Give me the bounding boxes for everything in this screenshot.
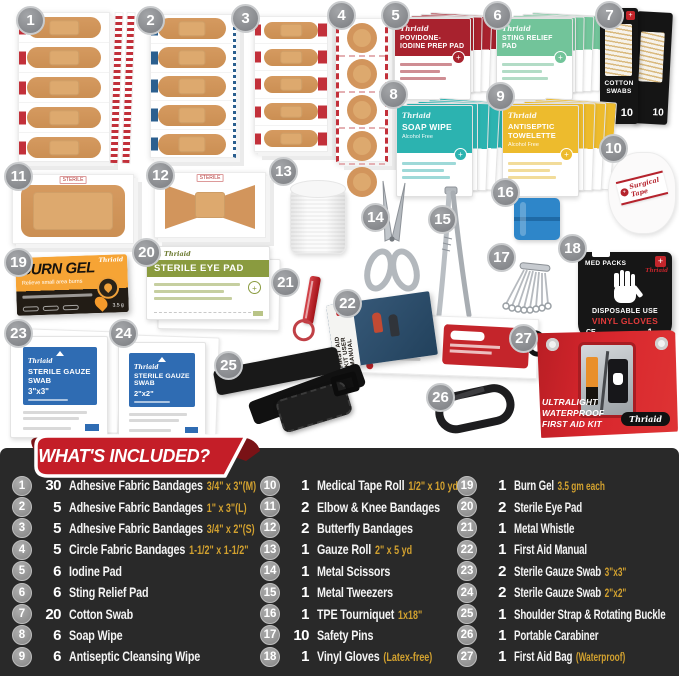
bandage-row [255,99,327,126]
circle-bandage-shape [347,131,377,161]
seal-icon: + [248,281,261,294]
item-qty: 6 [34,648,61,665]
item-qty: 1 [479,627,506,644]
callout-23: 23 [4,319,33,348]
item-note: 1/2" x 10 yd [408,481,458,493]
decor [151,80,158,93]
decor [23,417,79,420]
brand-text: Thriaid [98,256,123,264]
decor [614,273,619,288]
seal-icon: + [454,148,467,161]
item-number: 15 [260,583,280,603]
brand-text: Thriaid [508,111,573,120]
eye-pad-title: STERILE EYE PAD [147,260,269,277]
bandage-row [255,17,327,44]
callout-4: 4 [327,1,356,30]
item-number: 23 [457,561,477,581]
decor [151,51,158,64]
cross-icon: + [655,256,666,267]
decor [154,297,232,300]
decor [388,314,400,337]
item-label: Cotton Swab [69,607,133,622]
item-number: 17 [260,625,280,645]
tourniquet [514,198,560,240]
decor [318,105,327,118]
bandage-shape [264,130,318,147]
decor [255,133,261,144]
decor [508,176,556,179]
list-item: 251Shoulder Strap & Rotating Buckle [457,603,679,624]
decor [23,411,87,414]
item-number: 21 [457,518,477,538]
bandage-row [151,44,233,73]
glove-graphic [604,272,646,304]
callout-19: 19 [4,248,33,277]
item-note: 1" x 3"(L) [207,503,247,515]
item-label: Sterile Gauze Swab2"x2" [514,585,626,600]
swab-count: 10 [621,107,633,119]
bandage-shape [158,76,226,97]
bandage-row [339,93,385,129]
item-label: Adhesive Fabric Bandages1" x 3"(L) [69,500,247,515]
decor [502,63,554,66]
decor [154,312,261,313]
decor [253,311,263,316]
decor [151,109,158,122]
bag-body: ULTRALIGHTWATERPROOFFIRST AID KIT Thriai… [534,330,678,438]
bandage-row [19,43,109,73]
callout-20: 20 [132,238,161,267]
callout-14: 14 [361,203,390,232]
brand-text: Thriaid [400,24,465,33]
item-qty: 1 [282,541,309,558]
item-note: 1x18" [398,610,422,622]
hang-tab [592,249,610,257]
item-qty: 6 [34,563,61,580]
decor [134,401,170,403]
bandage-row [19,73,109,103]
sterile-eye-pads: + Thriaid STERILE EYE PAD + [146,246,282,332]
weight-text: 3.5 g [113,302,124,308]
callout-26: 26 [426,383,455,412]
swab-window [605,24,632,76]
item-note: 3"x3" [605,567,627,579]
decor [508,162,562,165]
callout-8: 8 [379,80,408,109]
scissors-icon [352,178,432,304]
gauze-size: 3"x3" [28,387,92,396]
sterile-tag: STERILE [60,176,87,184]
item-number: 16 [260,604,280,624]
bag-logo: Thriaid [621,412,670,426]
bandage-row [19,103,109,133]
decor [402,162,456,165]
packet-title: POVIDONE-IODINE PREP PAD [400,35,465,52]
item-number: 13 [260,540,280,560]
sterile-tag: STERILE [197,174,224,182]
brand-row: + Thriaid [147,247,269,260]
brand-text: Thriaid [645,268,668,274]
item-number: 5 [12,561,32,581]
decor [151,138,158,151]
packet-top: Thriaid ANTISEPTIC TOWELETTE Alcohol Fre… [503,106,578,153]
item-label: Burn Gel3.5 gm each [514,478,605,493]
brand-text: Thriaid [164,250,191,258]
decor [255,106,261,117]
bandage-shape [27,107,101,128]
decor [28,399,68,401]
item-label: Sterile Gauze Swab3"x3" [514,564,626,579]
decor [608,359,628,403]
decor [620,270,625,288]
item-qty: 6 [34,627,61,644]
item-number: 4 [12,540,32,560]
callout-10: 10 [599,134,628,163]
decor [63,305,79,311]
callout-13: 13 [269,157,298,186]
blue-label: Thriaid STERILE GAUZE SWAB 3"x3" [23,347,97,405]
decor [318,24,327,37]
item-number: 24 [457,583,477,603]
item-qty: 1 [282,648,309,665]
item-label: Antiseptic Cleansing Wipe [69,649,200,664]
item-number: 12 [260,518,280,538]
bandage-shape [158,105,226,126]
list-item: 202Sterile Eye Pad [457,496,679,517]
seal-icon: + [554,51,567,64]
decor [450,349,492,354]
decor [625,271,630,288]
item-label: First Aid Bag(Waterproof) [514,649,625,664]
bandage-shape [264,22,318,39]
bandage-row [19,133,109,163]
callout-15: 15 [428,205,457,234]
packet-title: ANTISEPTIC TOWELETTE [508,122,573,140]
decor [450,330,484,341]
item-label: Circle Fabric Bandages1-1/2" x 1-1/2" [69,542,248,557]
item-number: 9 [12,647,32,667]
decor [19,111,26,124]
bandage-shape [27,47,101,68]
bandage-row [339,129,385,165]
tape-title: Surgical Tape [628,175,665,199]
item-number: 27 [457,647,477,667]
list-item: 211Metal Whistle [457,518,679,539]
gloves-line1: DISPOSABLE USE [578,308,672,315]
item-label: Gauze Roll2" x 5 yd [317,542,412,557]
bandage-row [255,44,327,71]
callout-27: 27 [509,324,538,353]
item-number: 6 [12,583,32,603]
cross-icon: + [626,11,635,20]
maker-text: MED PACKS [585,260,626,267]
bandage-shape [21,185,125,237]
product-infographic: Thriaid POVIDONE-IODINE PREP PAD + Thria… [0,0,679,676]
packet-front: Thriaid STERILE GAUZE SWAB 2"x2" [118,342,206,440]
bandages-large-card [150,14,236,158]
gloves-line2: VINYL GLOVES [578,316,672,326]
decor [372,312,384,333]
surgical-tape: + Surgical Tape [608,152,676,234]
packet-title: SOAP WIPE [402,122,467,132]
decor [400,70,440,73]
item-label: Shoulder Strap & Rotating Buckle [514,607,665,622]
antiseptic-towelettes: Thriaid ANTISEPTIC TOWELETTE Alcohol Fre… [502,100,612,200]
decor [255,52,261,63]
item-qty: 1 [479,648,506,665]
decor [502,70,542,73]
decor [43,305,59,311]
item-note: 2" x 5 yd [375,545,412,557]
bandage-row [151,73,233,102]
item-label: Medical Tape Roll1/2" x 10 yd [317,478,458,493]
callout-24: 24 [109,319,138,348]
item-qty: 1 [282,477,309,494]
decor [318,51,327,64]
packet-front: Thriaid STERILE GAUZE SWAB 3"x3" [10,336,108,438]
item-number: 14 [260,561,280,581]
item-qty: 1 [479,520,506,537]
first-aid-bag: ULTRALIGHTWATERPROOFFIRST AID KIT Thriai… [528,326,678,440]
roll-top [290,180,346,198]
circle-bandage-shape [347,23,377,53]
item-qty: 5 [34,541,61,558]
swab-window [638,31,665,82]
item-qty: 5 [34,499,61,516]
item-qty: 10 [282,627,309,644]
packet-top: Thriaid SOAP WIPE Alcohol Free [397,106,472,153]
item-number: 20 [457,497,477,517]
bandage-shape [158,18,226,39]
brand-text: Thriaid [28,358,92,365]
item-note: (Waterproof) [576,652,625,664]
item-qty: 2 [479,499,506,516]
item-number: 11 [260,497,280,517]
bag-text: ULTRALIGHTWATERPROOFFIRST AID KIT [542,397,604,430]
callout-25: 25 [214,351,243,380]
item-qty: 1 [479,606,506,623]
gauze-roll [290,180,346,258]
bandage-row [151,130,233,159]
callout-1: 1 [16,6,45,35]
brand-text: Thriaid [402,111,467,120]
item-label: Sterile Eye Pad [514,500,582,515]
decor [19,51,26,64]
blue-label: Thriaid STERILE GAUZE SWAB 2"x2" [129,353,195,407]
item-label: Safety Pins [317,628,373,643]
decor [508,169,550,172]
decor [33,192,113,230]
item-qty: 5 [34,520,61,537]
whats-included-title: WHAT'S INCLUDED? [36,440,212,472]
item-label: Iodine Pad [69,564,122,579]
item-qty: 2 [282,520,309,537]
callout-5: 5 [381,1,410,30]
callout-17: 17 [487,243,516,272]
item-label: Metal Whistle [514,521,574,536]
bandage-shape [27,77,101,98]
item-number: 3 [12,518,32,538]
item-qty: 2 [479,584,506,601]
list-item: 261Portable Carabiner [457,625,679,646]
item-number: 2 [12,497,32,517]
decor [450,343,500,349]
packet-subtitle: Alcohol Free [402,134,467,140]
callout-21: 21 [271,268,300,297]
callout-3: 3 [231,4,260,33]
swab-title: COTTON SWABS [600,80,638,96]
item-number: 26 [457,625,477,645]
decor [129,419,179,422]
decor [318,132,327,145]
circle-bandage-shape [347,59,377,89]
bandage-row [339,57,385,93]
list-item: 271First Aid Bag(Waterproof) [457,646,679,667]
brand-text: Thriaid [134,364,190,371]
item-note: 1-1/2" x 1-1/2" [189,545,248,557]
decor [154,283,240,286]
item-label: Portable Carabiner [514,628,598,643]
decor [154,290,224,293]
packet-subtitle: Alcohol Free [508,142,573,148]
grommet [546,338,559,351]
item-qty: 1 [282,563,309,580]
decor [318,78,327,91]
list-column-3: 191Burn Gel3.5 gm each 202Sterile Eye Pa… [457,475,679,668]
item-qty: 20 [34,606,61,623]
item-number: 19 [457,476,477,496]
item-number: 22 [457,540,477,560]
item-note: 3/4" x 3"(M) [207,481,256,493]
callout-9: 9 [486,82,515,111]
callout-7: 7 [595,1,624,30]
decor [19,81,26,94]
grommet [655,337,668,350]
seal-icon: + [452,51,465,64]
list-item: 232Sterile Gauze Swab3"x3" [457,561,679,582]
item-label: Vinyl Gloves(Latex-free) [317,649,432,664]
item-label: Elbow & Knee Bandages [317,500,440,515]
decor [613,373,623,385]
decor [402,169,444,172]
decor [19,141,26,154]
butterfly-pad [195,192,225,218]
item-label: Adhesive Fabric Bandages3/4" x 2"(S) [69,521,255,536]
decor [400,63,452,66]
item-label: Metal Tweezers [317,585,393,600]
list-item: 221First Aid Manual [457,539,679,560]
item-qty: 1 [282,606,309,623]
callout-16: 16 [491,178,520,207]
item-label: Metal Scissors [317,564,390,579]
callout-2: 2 [136,6,165,35]
bandage-shape [264,49,318,66]
decor [520,202,526,236]
bandage-row [255,71,327,98]
gauze-title: STERILE GAUZE SWAB [28,367,92,385]
item-note: (Latex-free) [383,652,432,664]
drop-icon [102,282,113,293]
swab-count: 10 [652,107,664,119]
cross-icon: + [620,188,630,198]
item-qty: 1 [479,541,506,558]
cap-icon [56,351,64,356]
item-number: 18 [260,647,280,667]
bandage-row [255,126,327,153]
item-label: Butterfly Bandages [317,521,413,536]
list-item: 191Burn Gel3.5 gm each [457,475,679,496]
callout-12: 12 [146,161,175,190]
item-qty: 6 [34,584,61,601]
decor [502,77,548,80]
decor [400,77,446,80]
item-label: Sting Relief Pad [69,585,148,600]
gauze-title: STERILE GAUZE SWAB [134,373,190,387]
item-label: Soap Wipe [69,628,123,643]
bandage-row [151,101,233,130]
item-note: 2"x2" [605,588,627,600]
callout-18: 18 [558,234,587,263]
item-number: 7 [12,604,32,624]
callout-6: 6 [483,1,512,30]
bandages-small-card [254,16,328,152]
item-note: 3/4" x 2"(S) [207,524,255,536]
circle-bandage-shape [347,95,377,125]
peel-strip [121,12,135,164]
item-label: TPE Tourniquet1x18" [317,607,422,622]
gauze-swab-2x2: Thriaid STERILE GAUZE SWAB 2"x2" [118,334,220,442]
cap-icon [158,357,166,362]
callout-22: 22 [333,289,362,318]
packet-front: + Thriaid STERILE EYE PAD + [146,246,270,320]
item-note: 3.5 gm each [557,481,604,493]
packet-title: STING RELIEF PAD [502,35,567,52]
decor [255,79,261,90]
bandage-shape [158,47,226,68]
callout-11: 11 [4,162,33,191]
bandage-shape [158,134,226,155]
item-qty: 1 [282,584,309,601]
bandage-shape [264,76,318,93]
seal-icon: + [560,148,573,161]
item-qty: 1 [479,477,506,494]
item-number: 25 [457,604,477,624]
item-label: First Aid Manual [514,542,587,557]
item-qty: 2 [282,499,309,516]
bandage-shape [27,137,101,158]
gauze-size: 2"x2" [134,389,190,398]
list-item: 242Sterile Gauze Swab2"x2" [457,582,679,603]
item-qty: 2 [479,563,506,580]
bandage-shape [264,103,318,120]
item-number: 8 [12,625,32,645]
decor [23,306,39,312]
decor [129,413,187,416]
brand-text: Thriaid [502,24,567,33]
